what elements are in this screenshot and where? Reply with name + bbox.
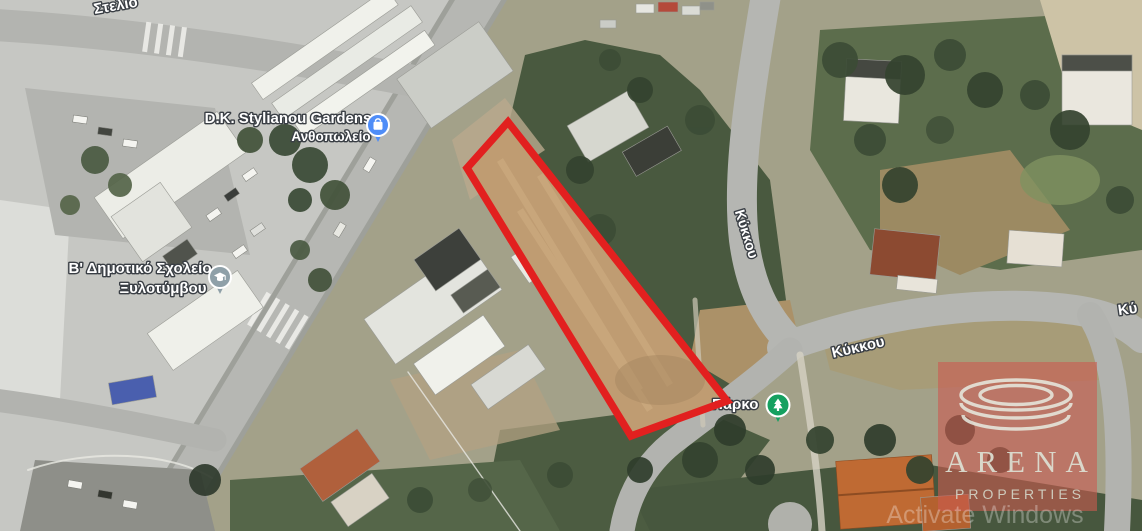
arena-sub-text: PROPERTIES [955,486,1085,502]
map-canvas: Πάρκο Στελιο D.K. Stylianou Gardens Ανθο… [0,0,1142,531]
arena-properties-watermark: ARENA PROPERTIES [938,362,1097,511]
school-label-line2[interactable]: Ξυλοτύμβου [120,280,207,297]
flower-shop-label[interactable]: D.K. Stylianou Gardens [205,110,372,127]
satellite-map: Πάρκο Στελιο D.K. Stylianou Gardens Ανθο… [0,0,1142,531]
arena-brand-text: ARENA [945,444,1097,479]
activate-windows-watermark: Activate Windows [886,501,1083,529]
flower-shop-category[interactable]: Ανθοπωλείο [291,129,370,144]
school-label-line1[interactable]: Β' Δημοτικό Σχολείο [69,260,212,277]
kykkou-street-label-edge[interactable]: Κύ [1117,300,1139,320]
